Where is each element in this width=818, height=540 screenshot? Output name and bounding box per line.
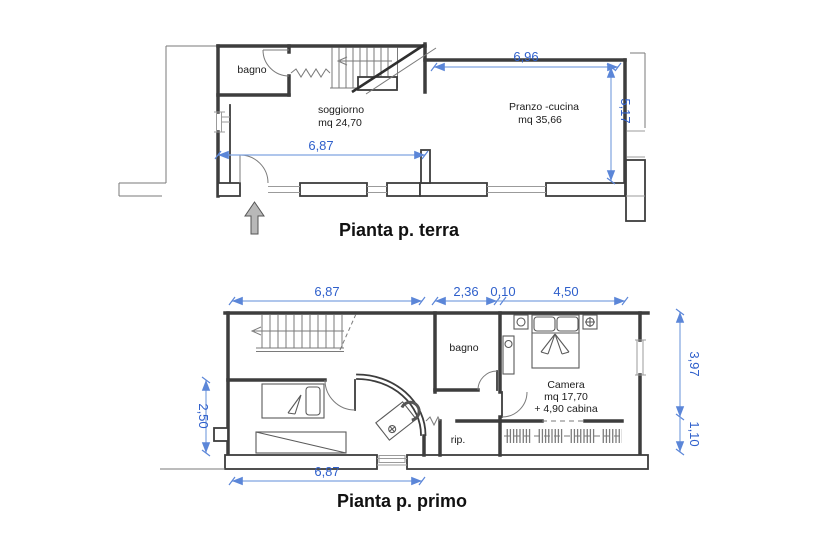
first-floor-plan: 6,87 2,36 0,10 4,50 2,50 3,97	[160, 284, 702, 511]
dimension-camera-width: 4,50	[503, 284, 628, 305]
dim-width-bottom-text: 6,87	[314, 464, 339, 479]
dim-height-right-lower-text: 1,10	[687, 421, 702, 446]
right-wall-window-symbol	[635, 340, 646, 375]
camera-label: Camera	[547, 379, 585, 391]
dimension-width-top: 6,87	[229, 284, 425, 305]
camera-area-label: mq 17,70	[544, 391, 588, 403]
bottom-wall-piers	[218, 150, 625, 196]
entrance-arrow-icon	[245, 202, 264, 234]
soggiorno-label: soggiorno	[318, 104, 364, 116]
ground-floor-plan: 6,87 6,96 5,17 bagno soggiorno mq 24,70 …	[119, 44, 645, 240]
dim-width-top-text: 6,96	[513, 49, 538, 64]
floor-plan-drawing: 6,87 6,96 5,17 bagno soggiorno mq 24,70 …	[0, 0, 818, 540]
cabinet-symbol	[503, 336, 514, 374]
rip-label: rip.	[451, 434, 466, 446]
bagno-door-arc	[263, 50, 289, 76]
first-floor-title: Pianta p. primo	[337, 491, 467, 511]
double-bed-symbol	[532, 315, 579, 368]
floor-plan-canvas: 6,87 6,96 5,17 bagno soggiorno mq 24,70 …	[0, 0, 818, 540]
dim-camera-width-text: 4,50	[553, 284, 578, 299]
staircase-symbol	[252, 314, 356, 352]
desk-chair-symbol	[376, 396, 424, 440]
dim-width-top-text: 6,87	[314, 284, 339, 299]
stair-direction-arrow	[252, 327, 344, 335]
walkin-closet-rack-symbol	[504, 429, 622, 443]
partition-break-zigzag	[426, 417, 440, 425]
bagno-label: bagno	[237, 64, 266, 76]
dim-bagno-width-text: 2,36	[453, 284, 478, 299]
dim-width-mid-text: 6,87	[308, 138, 333, 153]
bagno-label: bagno	[449, 342, 478, 354]
adjacent-structure-lines	[119, 46, 218, 196]
pranzo-area-label: mq 35,66	[518, 114, 562, 126]
dimension-wall-thickness: 0,10	[490, 284, 515, 305]
wardrobe-symbol	[256, 432, 346, 453]
partition-break-zigzag	[291, 69, 330, 77]
entrance-door-arc	[240, 155, 268, 183]
staircase-symbol	[330, 45, 436, 94]
dimension-height-right-upper: 3,97	[676, 309, 702, 420]
bedroom-door-arc	[325, 380, 355, 410]
nightstand-symbol	[514, 315, 528, 329]
pranzo-label: Pranzo -cucina	[509, 101, 579, 113]
camera-door-arc	[502, 392, 527, 417]
dim-height-right-upper-text: 3,97	[687, 351, 702, 376]
camera-extra-label: + 4,90 cabina	[534, 403, 598, 415]
single-bed-symbol	[262, 384, 324, 418]
bottom-wall-window-symbol	[377, 456, 407, 466]
dimension-height-left: 2,50	[196, 377, 211, 456]
bagno-door-arc	[478, 371, 497, 390]
dim-height-right-text: 5,17	[618, 98, 633, 123]
dim-height-left-text: 2,50	[196, 403, 211, 428]
nightstand-lamp-symbol	[583, 315, 597, 329]
right-offset-structure	[626, 53, 645, 221]
soggiorno-area-label: mq 24,70	[318, 117, 362, 129]
ground-floor-title: Pianta p. terra	[339, 220, 460, 240]
dim-wall-thickness-text: 0,10	[490, 284, 515, 299]
dimension-height-right-lower: 1,10	[676, 417, 702, 455]
